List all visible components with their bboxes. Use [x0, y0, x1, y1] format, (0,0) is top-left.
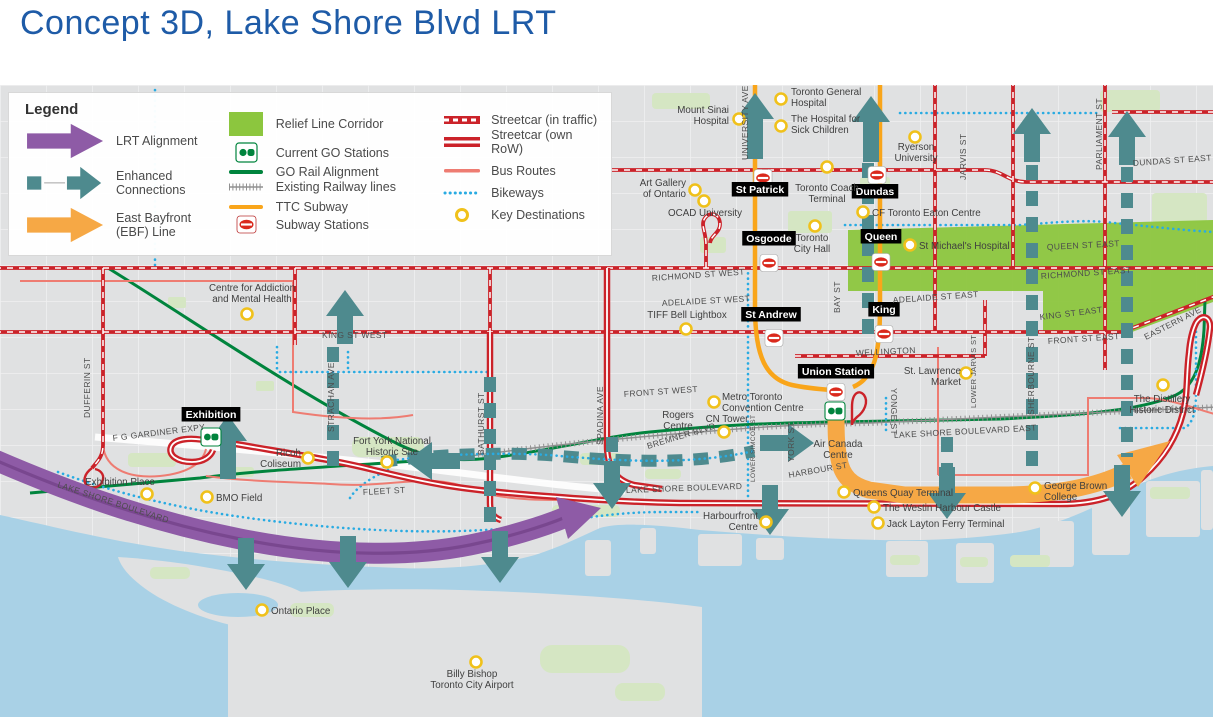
ttc-station-icon [827, 384, 845, 401]
legend-item-go-rail: GO Rail Alignment [227, 165, 442, 179]
streetcar-traffic-swatch [442, 114, 482, 126]
key-destination-marker [761, 517, 772, 528]
legend-item-ttc-subway: TTC Subway [227, 200, 442, 214]
key-destination-label: St Michael's Hospital [919, 241, 1010, 252]
key-destination-marker [858, 207, 869, 218]
legend-item-bikeways: Bikeways [442, 186, 607, 200]
legend-item-east-bayfront: East Bayfront (EBF) Line [25, 206, 227, 244]
bikeways-swatch [442, 188, 482, 198]
ttc-station-icon [875, 326, 893, 343]
legend-item-label: Bus Routes [491, 164, 556, 178]
station-label: St Patrick [736, 184, 785, 196]
lrt-arrow-icon [25, 122, 107, 160]
key-destination-marker [382, 457, 393, 468]
key-destination-marker [471, 657, 482, 668]
legend-item-label: GO Rail Alignment [276, 165, 379, 179]
key-destination-label: CF Toronto Eaton Centre [872, 208, 981, 219]
street-label: BATHURST ST [476, 392, 486, 455]
subway-station-icon [227, 215, 267, 235]
legend-item-enhanced-connections: Enhanced Connections [25, 164, 227, 202]
key-destination-label: RyersonUniversity [894, 142, 937, 164]
enhanced-connections-arrow-icon [25, 164, 107, 202]
station-label: Queen [865, 231, 898, 243]
street-label: SPADINA AVE [595, 386, 605, 445]
street-label: SHERBOURNE ST [1026, 337, 1036, 415]
key-destination-icon [442, 206, 482, 224]
legend-item-label: Existing Railway lines [276, 180, 396, 194]
key-destination-label: Art Galleryof Ontario [640, 178, 687, 200]
street-label: YONGE ST [889, 388, 899, 435]
bus-routes-swatch [442, 166, 482, 176]
key-destination-label: Ontario Place [271, 606, 331, 617]
legend-item-go-stations: Current GO Stations [227, 142, 442, 164]
key-destination-marker [776, 121, 787, 132]
legend-item-label: Key Destinations [491, 208, 585, 222]
streetcar-row-swatch [442, 136, 482, 148]
ttc-subway-swatch [227, 201, 267, 213]
legend-item-label: LRT Alignment [116, 134, 198, 148]
legend-item-label: TTC Subway [276, 200, 348, 214]
key-destination-marker [822, 162, 833, 173]
key-destination-marker [709, 397, 720, 408]
key-destination-label: BMO Field [216, 493, 262, 504]
legend-item-bus-routes: Bus Routes [442, 164, 607, 178]
ttc-station-icon [868, 167, 886, 184]
street-label: LOWER SIMCOE ST [750, 415, 757, 482]
key-destination-label: Queens Quay Terminal [853, 488, 953, 499]
key-destination-label: Centre for Addictionand Mental Health [209, 283, 295, 305]
key-destination-marker [810, 221, 821, 232]
legend-item-key-destinations: Key Destinations [442, 206, 607, 224]
key-destination-marker [910, 132, 921, 143]
key-destination-marker [257, 605, 268, 616]
key-destination-label: The DistilleryHistoric District [1129, 394, 1195, 416]
key-destination-label: OCAD University [668, 208, 742, 219]
legend-item-label: Relief Line Corridor [276, 117, 384, 131]
railway-swatch [227, 181, 267, 193]
legend-item-existing-railway: Existing Railway lines [227, 180, 442, 194]
key-destination-marker [905, 240, 916, 251]
page-title: Concept 3D, Lake Shore Blvd LRT [20, 4, 557, 43]
legend-item-streetcar-traffic: Streetcar (in traffic) [442, 113, 607, 127]
station-label: St Andrew [745, 309, 797, 321]
legend-item-label: Current GO Stations [276, 146, 389, 160]
go-station-icon [825, 402, 845, 420]
legend-item-relief-corridor: Relief Line Corridor [227, 111, 442, 137]
street-label: BAY ST [832, 281, 842, 313]
key-destination-marker [690, 185, 701, 196]
legend-item-label: Subway Stations [276, 218, 369, 232]
key-destination-marker [242, 309, 253, 320]
key-destination-marker [776, 94, 787, 105]
ebf-arrow-icon [25, 206, 107, 244]
key-destination-label: TorontoCity Hall [794, 233, 830, 255]
key-destination-marker [1030, 483, 1041, 494]
street-label: LOWER JARVIS ST [969, 335, 978, 408]
go-rail-swatch [227, 166, 267, 178]
key-destination-marker [719, 427, 730, 438]
street-label: STRACHAN AVE [326, 362, 336, 432]
key-destination-marker [303, 453, 314, 464]
key-destination-label: TIFF Bell Lightbox [647, 310, 727, 321]
key-destination-label: Exhibition Place [85, 477, 155, 488]
street-label: YORK ST [786, 422, 796, 462]
key-destination-label: The Westin Harbour Castle [883, 503, 1002, 514]
key-destination-marker [839, 487, 850, 498]
legend-title: Legend [25, 101, 227, 118]
legend-item-streetcar-row: Streetcar (own RoW) [442, 128, 607, 156]
legend-item-lrt-alignment: LRT Alignment [25, 122, 227, 160]
legend-item-label: Streetcar (in traffic) [491, 113, 597, 127]
key-destination-marker [699, 196, 710, 207]
key-destination-marker [869, 502, 880, 513]
legend-item-subway-stations: Subway Stations [227, 215, 442, 235]
key-destination-marker [142, 489, 153, 500]
go-station-icon [227, 142, 267, 164]
street-label: KING ST WEST [322, 330, 388, 340]
key-destination-marker [873, 518, 884, 529]
key-destination-marker [202, 492, 213, 503]
station-label: Osgoode [746, 233, 792, 245]
station-label: Union Station [802, 366, 870, 378]
station-label: Exhibition [186, 409, 237, 421]
station-label: Dundas [856, 186, 895, 198]
key-destination-marker [1158, 380, 1169, 391]
key-destination-marker [681, 324, 692, 335]
legend-item-label: East Bayfront (EBF) Line [116, 211, 221, 239]
street-label: JARVIS ST [958, 134, 968, 180]
ttc-station-icon [760, 255, 778, 272]
ttc-station-icon [872, 254, 890, 271]
legend-item-label: Bikeways [491, 186, 544, 200]
legend-item-label: Enhanced Connections [116, 169, 221, 197]
station-label: King [872, 304, 895, 316]
legend-panel: Legend LRT Alignment Enhanced Connection… [8, 92, 612, 256]
legend-item-label: Streetcar (own RoW) [491, 128, 607, 156]
relief-corridor-swatch [227, 111, 267, 137]
street-label: DUFFERIN ST [82, 357, 92, 418]
street-label: UNIVERSITY AVE [740, 85, 750, 160]
key-destination-label: Jack Layton Ferry Terminal [887, 519, 1004, 530]
ttc-station-icon [765, 330, 783, 347]
street-label: PARLIAMENT ST [1094, 98, 1104, 170]
